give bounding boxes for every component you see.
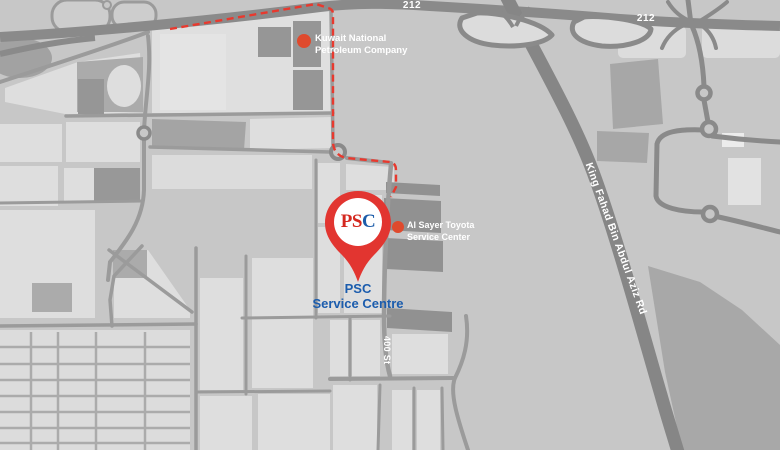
road — [0, 201, 142, 203]
building — [78, 79, 104, 114]
knpc-label-line2: Petroleum Company — [315, 45, 407, 57]
building — [94, 168, 140, 202]
alsayer-marker-label: Al Sayer Toyota Service Center — [407, 220, 474, 243]
junction-icon — [103, 1, 111, 9]
city-block — [66, 122, 140, 162]
road-label-212-west: 212 — [399, 0, 425, 11]
road — [0, 324, 196, 326]
knpc-marker-dot[interactable] — [297, 34, 311, 48]
road — [242, 316, 390, 318]
city-block — [728, 158, 761, 205]
psc-caption-line1: PSC — [296, 281, 420, 296]
road — [330, 378, 453, 379]
building — [32, 283, 72, 312]
city-block — [392, 334, 448, 374]
city-block — [252, 258, 313, 388]
psc-pin[interactable]: P S C — [322, 189, 394, 285]
roundabout-icon — [698, 87, 711, 100]
city-block — [258, 394, 330, 450]
street-400-road-label: 400 St — [382, 336, 392, 364]
building — [386, 238, 443, 272]
building — [610, 59, 663, 129]
building — [387, 308, 452, 332]
pin-circle: P S C — [334, 198, 382, 246]
roundabout-icon — [703, 207, 717, 221]
psc-caption: PSC Service Centre — [296, 281, 420, 311]
alsayer-label-line2: Service Center — [407, 232, 474, 244]
map-canvas: 212 212 Kuwait National Petroleum Compan… — [0, 0, 780, 450]
pin-letter-c: C — [362, 211, 375, 233]
building — [597, 131, 649, 163]
city-block — [0, 166, 58, 206]
road-label-212-east: 212 — [633, 13, 659, 24]
city-block — [107, 65, 141, 107]
city-block — [333, 385, 377, 450]
city-block — [200, 278, 243, 390]
city-block — [352, 320, 380, 376]
pin-letter-p: P — [341, 211, 352, 233]
roundabout-icon — [138, 127, 150, 139]
city-block — [200, 396, 252, 450]
city-block — [160, 34, 226, 110]
knpc-marker-label: Kuwait National Petroleum Company — [315, 33, 407, 57]
city-block — [392, 390, 412, 450]
alsayer-label-line1: Al Sayer Toyota — [407, 220, 474, 232]
knpc-label-line1: Kuwait National — [315, 33, 407, 45]
city-block — [417, 390, 440, 450]
city-block — [330, 320, 348, 376]
building — [258, 27, 291, 57]
pin-letter-s: S — [352, 211, 362, 233]
psc-caption-line2: Service Centre — [296, 296, 420, 311]
building — [293, 70, 323, 110]
city-block — [250, 117, 333, 150]
city-block — [0, 124, 62, 162]
road — [196, 391, 330, 392]
building — [152, 119, 246, 150]
roundabout-icon — [702, 122, 716, 136]
city-block — [152, 155, 312, 189]
